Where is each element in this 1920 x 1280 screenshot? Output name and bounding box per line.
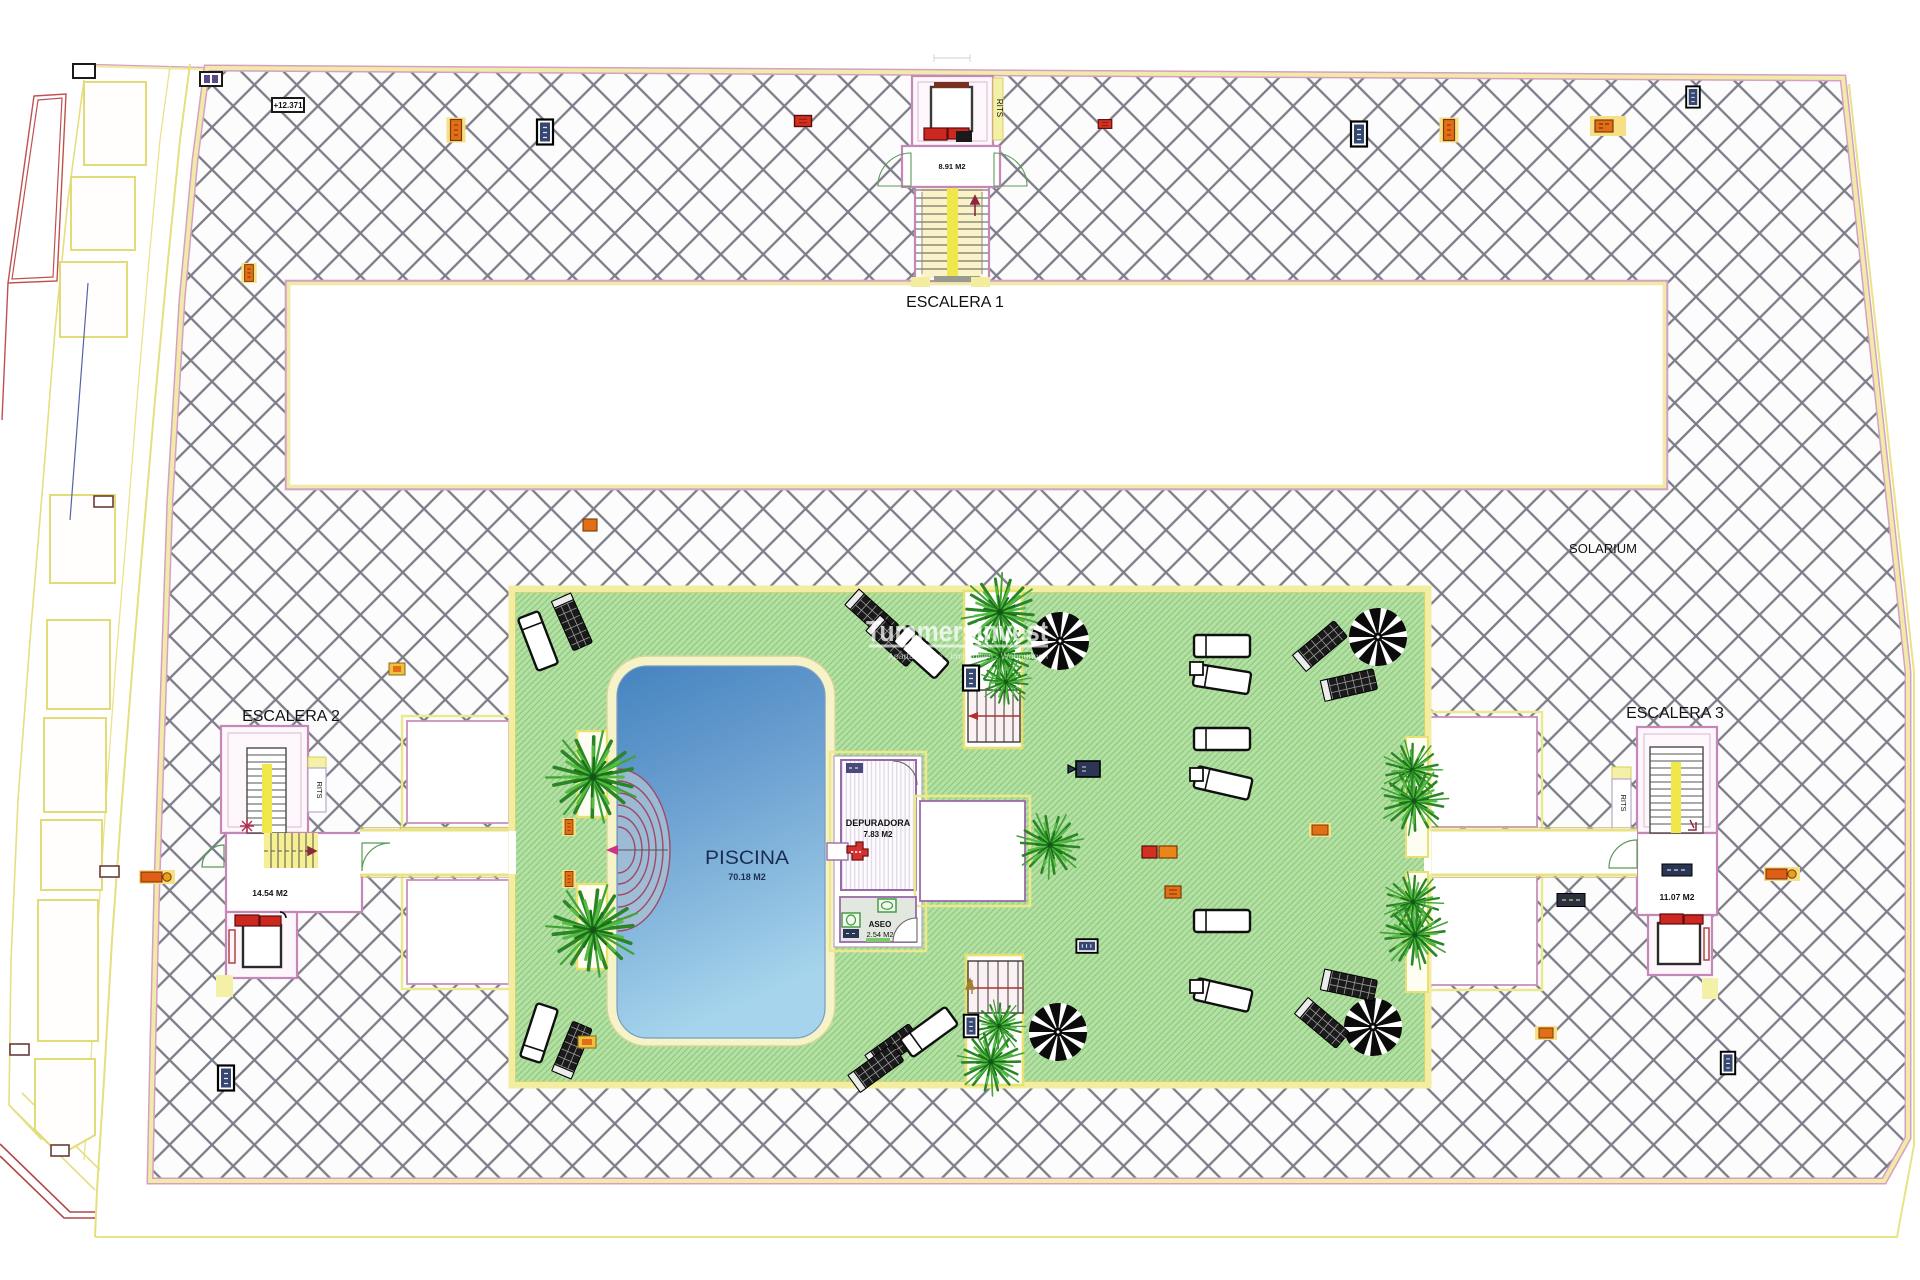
svg-text:11.07 M2: 11.07 M2 (1660, 892, 1695, 902)
svg-text:RITS: RITS (1619, 794, 1628, 811)
svg-text:14.54 M2: 14.54 M2 (252, 888, 288, 898)
svg-text:DEPURADORA: DEPURADORA (846, 818, 911, 828)
svg-text:ESCALERA 2: ESCALERA 2 (242, 708, 340, 725)
svg-text:+12.371: +12.371 (273, 101, 303, 110)
svg-text:RITS: RITS (315, 781, 324, 798)
svg-text:SOLARIUM: SOLARIUM (1569, 541, 1637, 556)
svg-text:7.83 M2: 7.83 M2 (864, 830, 893, 839)
svg-text:8.91 M2: 8.91 M2 (938, 162, 965, 171)
svg-text:PISCINA: PISCINA (705, 848, 789, 869)
svg-text:Apartamentos - Immobilien - Wo: Apartamentos - Immobilien - Wohnungen (888, 651, 1048, 661)
svg-text:TummersInvest: TummersInvest (866, 616, 1048, 648)
svg-text:ESCALERA 3: ESCALERA 3 (1626, 705, 1724, 722)
svg-text:ASEO: ASEO (869, 920, 892, 929)
svg-text:RITS: RITS (995, 99, 1004, 117)
svg-text:2.54 M2: 2.54 M2 (866, 930, 893, 939)
svg-text:70.18 M2: 70.18 M2 (728, 872, 766, 882)
svg-text:ESCALERA 1: ESCALERA 1 (906, 294, 1004, 311)
